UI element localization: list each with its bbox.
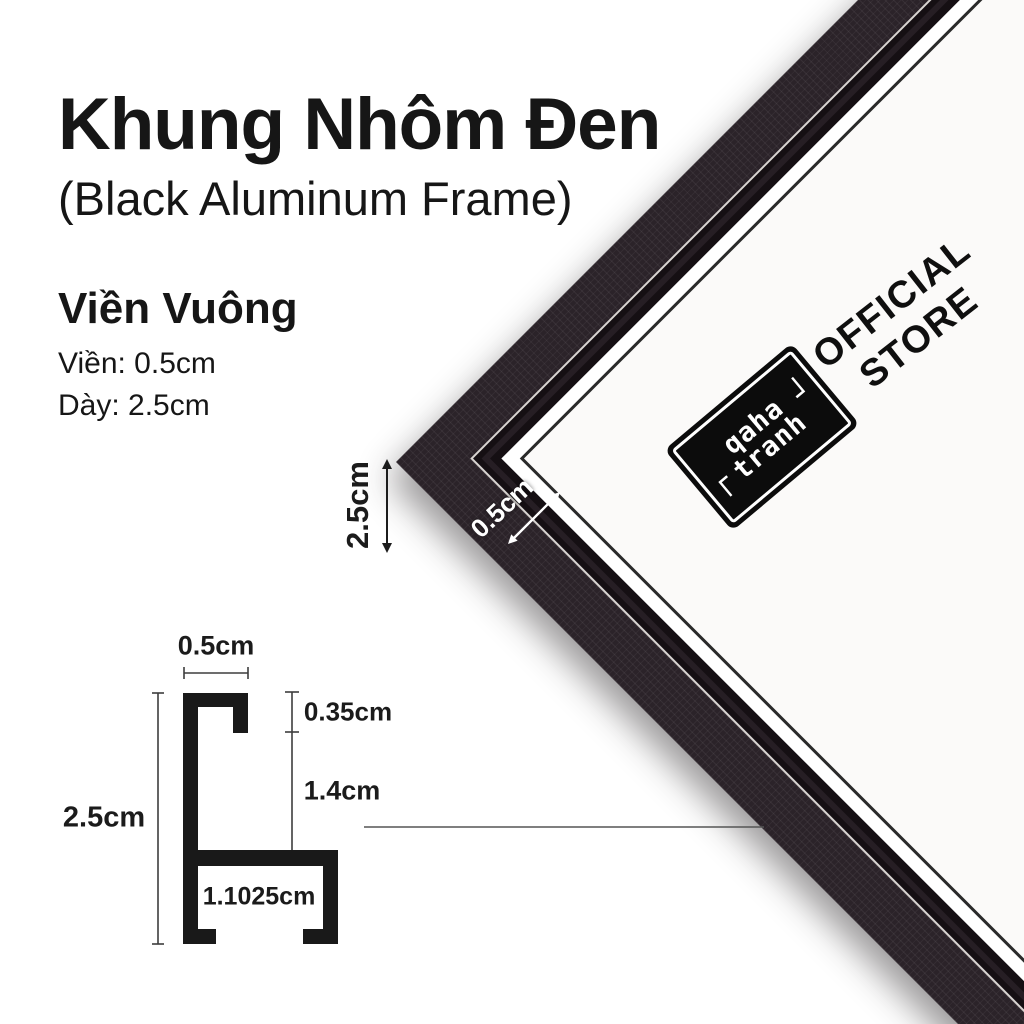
photo-label-thickness: 2.5cm — [340, 461, 376, 549]
spec-heading: Viền Vuông — [58, 284, 660, 334]
diagram-label-bottom-width: 1.1025cm — [203, 883, 316, 912]
spec-border: Viền: 0.5cm — [58, 347, 660, 381]
logo-bracket-left-icon: ┌ — [704, 466, 737, 501]
page-subtitle: (Black Aluminum Frame) — [58, 171, 660, 226]
diagram-label-lip-depth: 0.35cm — [304, 697, 392, 728]
logo-bracket-right-icon: ┘ — [788, 375, 821, 410]
text-column: Khung Nhôm Đen (Black Aluminum Frame) Vi… — [58, 88, 660, 423]
diagram-label-mid-height: 1.4cm — [304, 776, 381, 807]
diagram-label-total-height: 2.5cm — [63, 802, 145, 835]
page-title: Khung Nhôm Đen — [58, 88, 660, 162]
spec-thickness: Dày: 2.5cm — [58, 389, 660, 423]
diagram-label-top-width: 0.5cm — [178, 631, 255, 662]
logo-wordmark: qaha tranh — [712, 389, 812, 485]
